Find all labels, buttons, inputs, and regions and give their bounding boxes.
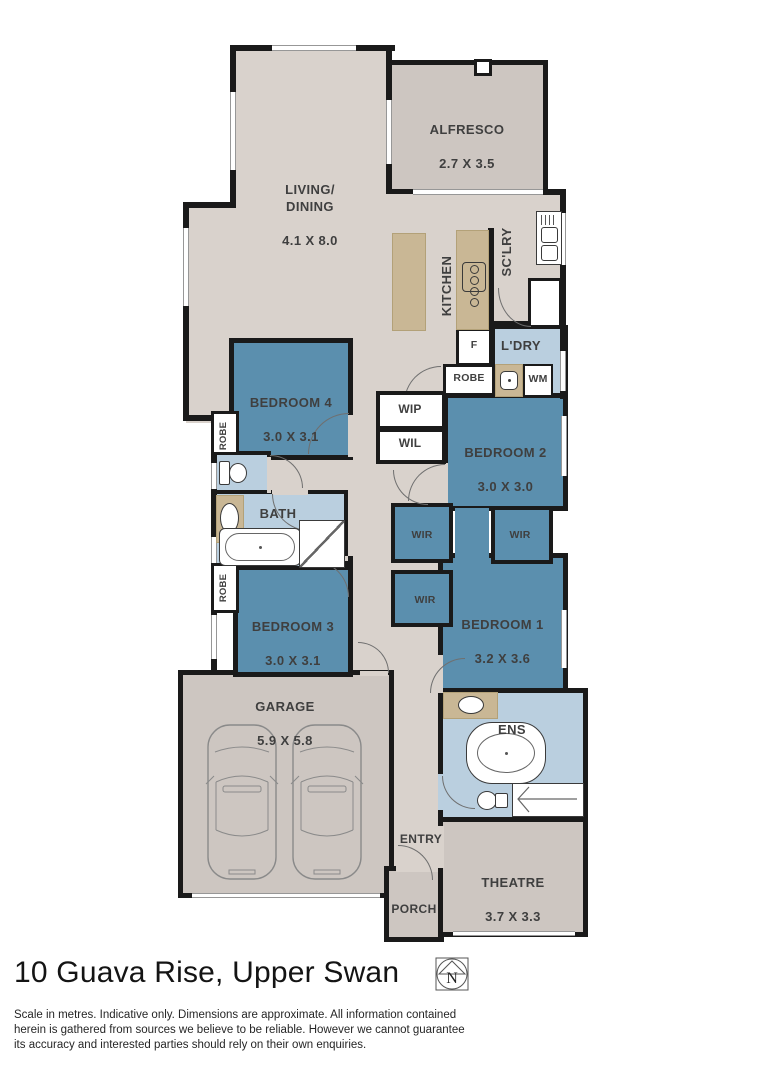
floorplan-page: ALFRESCO 2.7 X 3.5 LIVING/ DINING 4.1 X …	[0, 0, 764, 1080]
label-wir-left: WIR	[398, 529, 446, 543]
label-entry: ENTRY	[394, 832, 448, 848]
label-garage: GARAGE 5.9 X 5.8	[225, 682, 345, 766]
disclaimer-text: Scale in metres. Indicative only. Dimens…	[14, 1008, 466, 1054]
label-bedroom4: BEDROOM 4 3.0 X 3.1	[231, 378, 351, 462]
window-wc	[211, 463, 217, 489]
label-laundry: L'DRY	[490, 338, 552, 355]
ens-toilet-bowl	[477, 791, 497, 810]
alfresco-post	[474, 59, 492, 76]
bathtub-drain	[259, 546, 262, 549]
label-theatre: THEATRE 3.7 X 3.3	[450, 858, 576, 942]
room-dims: 3.0 X 3.1	[231, 429, 351, 446]
room-name: GARAGE	[225, 699, 345, 716]
label-porch: PORCH	[387, 902, 441, 918]
room-name: LIVING/ DINING	[240, 182, 380, 216]
room-dims: 2.7 X 3.5	[400, 156, 534, 173]
room-dims: 3.7 X 3.3	[450, 909, 576, 926]
label-robe-laundry: ROBE	[443, 372, 495, 386]
north-compass: N	[435, 957, 469, 991]
window-laundry	[560, 351, 566, 391]
alfresco-slider-door	[413, 189, 544, 195]
bath-shower	[299, 520, 345, 568]
burner	[470, 287, 479, 296]
sink-bowl	[541, 245, 558, 261]
room-name: THEATRE	[450, 875, 576, 892]
wall-living-step	[183, 202, 236, 208]
label-bedroom1: BEDROOM 1 3.2 X 3.6	[440, 600, 565, 684]
compass-north-label: N	[435, 970, 469, 988]
ens-shower-screen	[513, 784, 582, 815]
label-bedroom3: BEDROOM 3 3.0 X 3.1	[233, 602, 353, 686]
cooktop	[462, 262, 486, 292]
room-name: BEDROOM 4	[231, 395, 351, 412]
room-dims: 3.2 X 3.6	[440, 651, 565, 668]
bathtub	[219, 528, 301, 566]
burner	[470, 276, 479, 285]
window-living-lowerleft	[183, 228, 189, 306]
label-fridge: F	[456, 339, 492, 353]
label-wm: WM	[523, 373, 553, 387]
label-robe-bedroom4: ROBE	[218, 411, 232, 461]
label-kitchen: KITCHEN	[439, 231, 455, 341]
room-dims: 3.0 X 3.1	[233, 653, 353, 670]
room-dims: 5.9 X 5.8	[225, 733, 345, 750]
room-name: BEDROOM 3	[233, 619, 353, 636]
wc-toilet-bowl	[229, 463, 247, 483]
label-living: LIVING/ DINING 4.1 X 8.0	[240, 165, 380, 266]
room-dims: 3.0 X 3.0	[443, 479, 568, 496]
window-living-alfresco	[386, 100, 392, 164]
kitchen-island	[392, 233, 426, 331]
label-wip: WIP	[380, 402, 440, 418]
burner	[470, 265, 479, 274]
wir-corridor	[455, 508, 489, 578]
room-name: BEDROOM 1	[440, 617, 565, 634]
sink-drainer	[541, 215, 557, 225]
window-living-upperleft	[230, 92, 236, 170]
ens-basin	[458, 696, 484, 714]
scullery-sink	[536, 211, 562, 265]
scullery-niche	[528, 278, 562, 328]
label-bedroom2: BEDROOM 2 3.0 X 3.0	[443, 428, 568, 512]
drain-dot	[508, 379, 511, 382]
sink-bowl	[541, 227, 558, 243]
label-robe-bedroom3: ROBE	[218, 563, 232, 613]
page-title: 10 Guava Rise, Upper Swan	[14, 956, 399, 990]
laundry-sink	[500, 371, 518, 390]
room-name: ALFRESCO	[400, 122, 534, 139]
ens-bathtub-drain	[505, 752, 508, 755]
room-name: BEDROOM 2	[443, 445, 568, 462]
garage-door-opening	[192, 893, 380, 898]
label-scullery: SC'LRY	[499, 202, 515, 302]
window-bedroom3	[211, 615, 217, 659]
burner	[470, 298, 479, 307]
ens-shower	[512, 783, 584, 817]
label-wir-right: WIR	[496, 529, 544, 543]
window-living-top	[272, 45, 356, 51]
label-alfresco: ALFRESCO 2.7 X 3.5	[400, 105, 534, 189]
ens-cistern	[495, 793, 508, 808]
label-ensuite: ENS	[488, 722, 536, 739]
label-bath: BATH	[250, 506, 306, 523]
room-dims: 4.1 X 8.0	[240, 233, 380, 250]
label-wil: WIL	[380, 436, 440, 452]
